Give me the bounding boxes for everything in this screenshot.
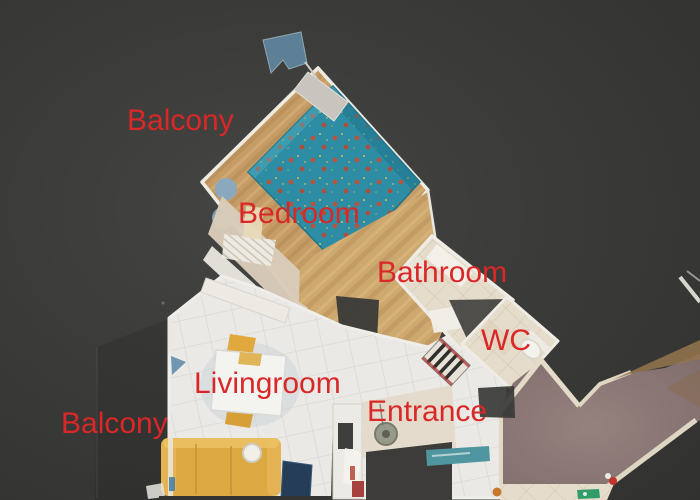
entrance-door-group [333,404,364,499]
room-label-balcony-top: Balcony [127,106,234,136]
red-object [350,466,355,480]
room-label-bathroom: Bathroom [377,258,507,288]
floor-light [493,488,502,497]
wall-item [169,477,175,491]
wall-trim [168,318,173,354]
room-label-balcony-bottom: Balcony [61,409,168,439]
floorplan-viewport: Balcony Bedroom Bathroom WC Livingroom E… [0,0,700,500]
storage-box [281,461,312,499]
room-label-wc: WC [481,326,531,356]
room-label-livingroom: Livingroom [194,369,341,399]
round-pillow [243,444,261,462]
white-object [605,473,611,479]
scan-cut-edge [159,496,339,500]
green-mat [577,489,600,499]
table-item [238,352,262,366]
scan-speck [162,302,165,305]
radiator-icon [215,178,237,200]
ceiling-lamp-core [382,430,390,438]
room-label-entrance: Entrance [367,397,487,427]
fire-extinguisher [609,477,617,485]
red-object [352,481,364,497]
green-mat-dot [583,492,587,496]
door-panel [338,423,353,449]
room-label-bedroom: Bedroom [238,199,360,229]
sofa-back [163,438,279,448]
